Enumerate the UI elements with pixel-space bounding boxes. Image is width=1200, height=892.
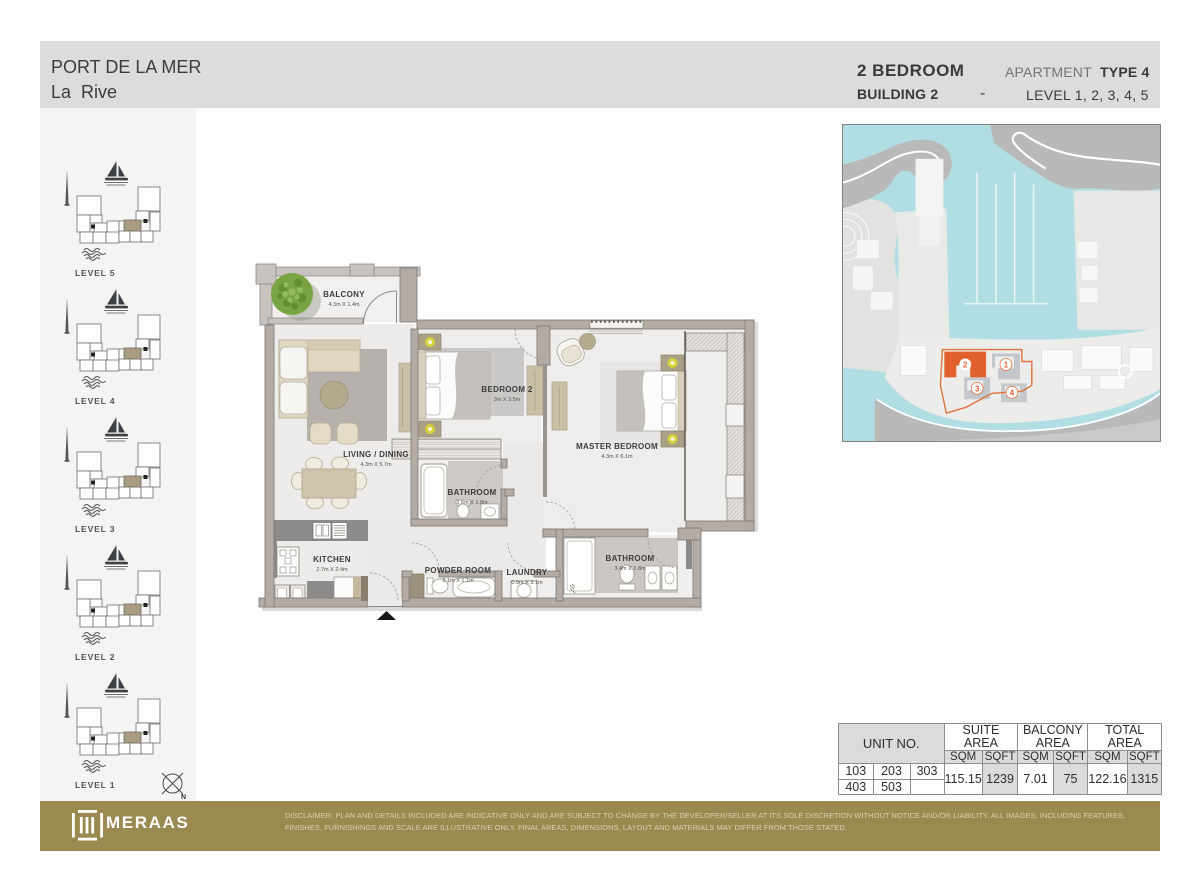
svg-text:LEVEL 5: LEVEL 5 [75, 268, 115, 278]
svg-text:LAUNDRY: LAUNDRY [507, 568, 548, 577]
svg-text:3: 3 [975, 384, 980, 393]
svg-text:BATHROOM: BATHROOM [606, 554, 655, 563]
svg-text:0.9m X 3.1m: 0.9m X 3.1m [511, 580, 543, 586]
svg-text:2.1m X 1.1m: 2.1m X 1.1m [442, 578, 474, 584]
svg-text:LEVEL 3: LEVEL 3 [75, 524, 115, 534]
svg-text:4.3m X 6.1m: 4.3m X 6.1m [601, 454, 633, 460]
svg-text:BEDROOM 2: BEDROOM 2 [481, 385, 532, 394]
svg-text:KITCHEN: KITCHEN [313, 555, 351, 564]
svg-text:LEVEL 1: LEVEL 1 [75, 780, 115, 790]
svg-text:3.4m X 1.8m: 3.4m X 1.8m [614, 566, 646, 572]
svg-text:MASTER BEDROOM: MASTER BEDROOM [576, 442, 658, 451]
svg-text:3m X 3.5m: 3m X 3.5m [494, 397, 521, 403]
svg-text:2: 2 [963, 360, 968, 369]
svg-text:POWDER ROOM: POWDER ROOM [425, 566, 491, 575]
svg-text:4: 4 [1010, 388, 1015, 397]
svg-text:BATHROOM: BATHROOM [448, 488, 497, 497]
svg-text:2.6m X 1.8m: 2.6m X 1.8m [456, 500, 488, 506]
svg-text:2.7m X 2.4m: 2.7m X 2.4m [316, 567, 348, 573]
svg-text:4.3m X 1.4m: 4.3m X 1.4m [328, 302, 360, 308]
svg-text:1: 1 [1004, 360, 1009, 369]
svg-text:LEVEL 4: LEVEL 4 [75, 396, 115, 406]
svg-text:LEVEL 2: LEVEL 2 [75, 652, 115, 662]
svg-text:LIVING / DINING: LIVING / DINING [343, 450, 409, 459]
svg-text:BALCONY: BALCONY [323, 290, 365, 299]
svg-text:4.3m X 5.7m: 4.3m X 5.7m [360, 462, 392, 468]
svg-text:N: N [181, 794, 186, 801]
